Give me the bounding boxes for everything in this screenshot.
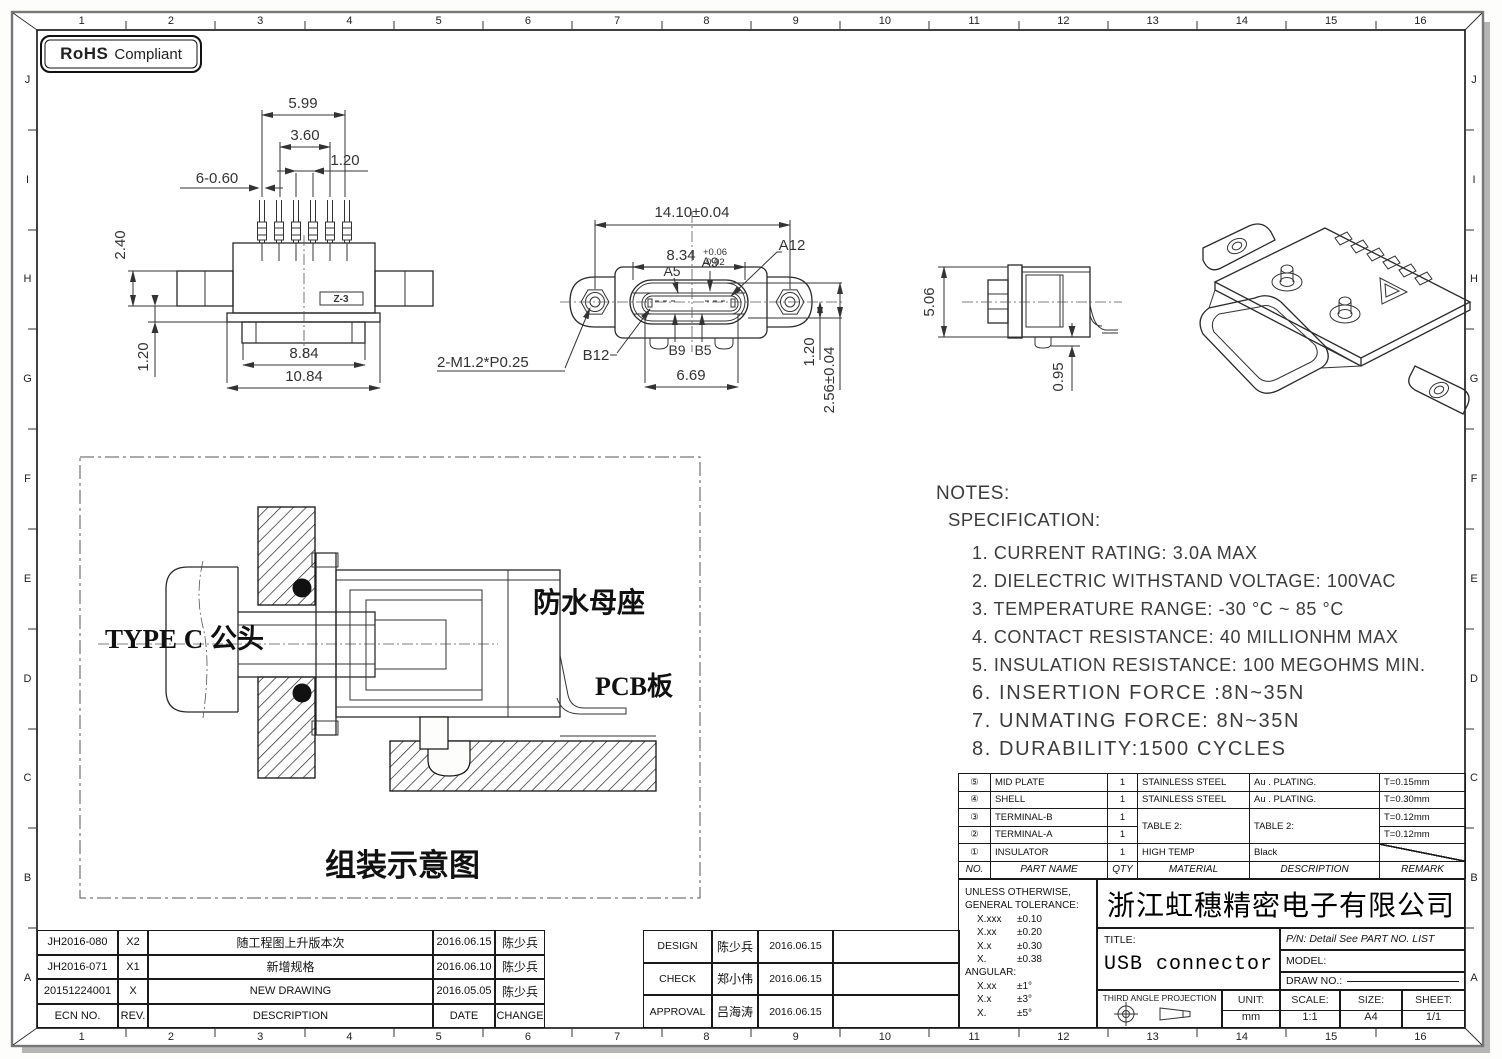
dim-5.06: 5.06 xyxy=(921,287,938,316)
dim-1.20-top: 1.20 xyxy=(330,152,359,169)
dim-5.99: 5.99 xyxy=(288,95,317,112)
unit-label: UNIT: xyxy=(1223,994,1279,1006)
frame-row-label: A xyxy=(18,928,37,1028)
unit-value: mm xyxy=(1223,1011,1279,1023)
assembly-caption: 组装示意图 xyxy=(325,848,480,883)
approval-empty xyxy=(833,930,960,963)
frame-col-labels-bottom: 12345678910111213141516 xyxy=(37,1028,1465,1046)
note-item: 4. CONTACT RESISTANCE: 40 MILLIONHM MAX xyxy=(972,623,1466,651)
tolerance-block: UNLESS OTHERWISE, GENERAL TOLERANCE: X.x… xyxy=(958,879,1097,1028)
sheet-cell: SHEET: 1/1 xyxy=(1402,990,1465,1028)
parts-header-qty: QTY xyxy=(1108,862,1138,880)
tolerance-heading1: UNLESS OTHERWISE, xyxy=(965,886,1090,899)
flange xyxy=(227,313,380,322)
title-cell: TITLE: USB connector xyxy=(1097,928,1280,990)
frame-row-label: A xyxy=(1465,928,1483,1028)
part-qty: 1 xyxy=(1108,774,1138,792)
rev-change: 陈少兵 xyxy=(495,955,545,980)
part-qty: 1 xyxy=(1108,809,1138,827)
frame-row-label: E xyxy=(1465,529,1483,629)
frame-row-label: F xyxy=(1465,429,1483,529)
rev-desc: 随工程图上升版本次 xyxy=(148,930,433,955)
frame-row-label: J xyxy=(18,30,37,130)
draw-no-cell: DRAW NO.: xyxy=(1280,972,1465,990)
frame-col-label: 11 xyxy=(930,11,1019,30)
rev-ecn: JH2016-071 xyxy=(37,955,118,980)
part-qty: 1 xyxy=(1108,827,1138,845)
frame-row-label: D xyxy=(18,629,37,729)
plan-view-drawing: 14.10±0.04 8.34 +0.06 -0.02 6.69 1.20 2.… xyxy=(430,190,855,405)
approval-date: 2016.06.15 xyxy=(758,930,833,963)
tongue xyxy=(645,296,738,311)
bottom-post xyxy=(1035,337,1051,348)
rev-rev: X1 xyxy=(118,955,148,980)
frame-col-label: 9 xyxy=(751,1028,840,1046)
frame-row-label: D xyxy=(1465,629,1483,729)
side-flange xyxy=(1008,265,1022,338)
approval-empty xyxy=(833,963,960,996)
tolerance-rows: X.xxx±0.10X.xx±0.20X.x±0.30X.±0.38 xyxy=(965,913,1090,967)
frame-col-label: 15 xyxy=(1287,11,1376,30)
dim-14.10: 14.10±0.04 xyxy=(655,204,730,221)
frame-row-label: G xyxy=(18,329,37,429)
frame-row-label: F xyxy=(18,429,37,529)
part-desc-merged: TABLE 2: xyxy=(1250,809,1380,844)
part-no: ④ xyxy=(959,792,991,810)
dim-8.34: 8.34 xyxy=(666,247,695,264)
projection-label: THIRD ANGLE PROJECTION xyxy=(1098,991,1221,1003)
pin xyxy=(258,200,267,261)
frame-row-label: C xyxy=(1465,729,1483,829)
part-remark-slash xyxy=(1380,844,1466,862)
model-cell: MODEL: xyxy=(1280,950,1465,972)
tolerance-row: X.xx±0.20 xyxy=(965,926,1090,939)
parts-table: ⑤ MID PLATE 1 STAINLESS STEEL Au . PLATI… xyxy=(958,773,1466,879)
sheet-value: 1/1 xyxy=(1403,1011,1464,1023)
thread-callout: 2-M1.2*P0.25 xyxy=(437,354,529,371)
frame-col-label: 2 xyxy=(126,1028,215,1046)
frame-col-label: 12 xyxy=(1019,1028,1108,1046)
part-name: SHELL xyxy=(991,792,1108,810)
frame-col-label: 3 xyxy=(216,11,305,30)
dim-6-0.60: 6-0.60 xyxy=(196,170,239,187)
dim-1.20-right: 1.20 xyxy=(801,337,818,366)
rev-change: 陈少兵 xyxy=(495,979,545,1004)
approval-empty xyxy=(833,995,960,1028)
part-remark: T=0.12mm xyxy=(1380,827,1466,845)
triangle-logo xyxy=(1380,278,1407,304)
parts-header-part: PART NAME xyxy=(991,862,1108,880)
frame-row-label: I xyxy=(18,130,37,230)
rev-header-change: CHANGE xyxy=(495,1004,545,1029)
frame-row-labels-right: JIHGFEDCBA xyxy=(1465,30,1483,1028)
rev-header-desc: DESCRIPTION xyxy=(148,1004,433,1029)
notes-title: NOTES: xyxy=(936,483,1466,505)
logo-text: Z-3 xyxy=(334,294,349,305)
mount-ear-bottom xyxy=(1409,366,1469,414)
o-ring-top xyxy=(293,579,312,598)
part-name: TERMINAL-A xyxy=(991,827,1108,845)
dim-2.56: 2.56±0.04 xyxy=(821,347,838,414)
isometric-view-drawing xyxy=(1175,190,1485,435)
part-name: INSULATOR xyxy=(991,844,1108,862)
frame-row-label: E xyxy=(18,529,37,629)
frame-col-label: 7 xyxy=(573,11,662,30)
approval-role: CHECK xyxy=(643,963,712,996)
lower-block xyxy=(242,322,365,343)
dim-8.84: 8.84 xyxy=(289,345,318,362)
approval-name: 陈少兵 xyxy=(712,930,758,963)
tolerance-row: X.xxx±0.10 xyxy=(965,913,1090,926)
tolerance-heading2: GENERAL TOLERANCE: xyxy=(965,899,1090,912)
shadow-bottom xyxy=(22,1047,1490,1053)
angular-row: X.xx±1° xyxy=(965,980,1090,993)
frame-col-label: 4 xyxy=(305,1028,394,1046)
rev-ecn: JH2016-080 xyxy=(37,930,118,955)
frame-col-label: 5 xyxy=(394,11,483,30)
tolerance-row: X.±0.38 xyxy=(965,953,1090,966)
o-ring-bottom xyxy=(293,684,312,703)
label-type-c-plug: TYPE C 公头 xyxy=(105,624,264,654)
rev-date: 2016.06.15 xyxy=(433,930,495,955)
draw-no-label: DRAW NO.: xyxy=(1286,975,1342,987)
frame-col-label: 9 xyxy=(751,11,840,30)
front-view-drawing: Z-3 5.99 3.60 1.20 6-0.60 2.40 1.20 8.84… xyxy=(120,85,470,405)
parts-header-remark: REMARK xyxy=(1380,862,1466,880)
angular-heading: ANGULAR: xyxy=(965,966,1090,979)
part-remark: T=0.15mm xyxy=(1380,774,1466,792)
part-material: STAINLESS STEEL xyxy=(1138,774,1250,792)
rev-desc: NEW DRAWING xyxy=(148,979,433,1004)
projection-cell: THIRD ANGLE PROJECTION xyxy=(1097,990,1222,1028)
frame-row-label: B xyxy=(18,828,37,928)
note-item: 8. DURABILITY:1500 CYCLES xyxy=(972,735,1466,763)
frame-col-label: 11 xyxy=(930,1028,1019,1046)
approval-role: APPROVAL xyxy=(643,995,712,1028)
foot-left xyxy=(650,338,668,349)
mating-mouth-outer xyxy=(1200,296,1328,393)
label-a12: A12 xyxy=(779,237,806,254)
part-name: MID PLATE xyxy=(991,774,1108,792)
part-desc: Au . PLATING. xyxy=(1250,774,1380,792)
frame-col-label: 16 xyxy=(1376,1028,1465,1046)
title-label: TITLE: xyxy=(1104,934,1136,946)
revision-table: JH2016-080 X2 随工程图上升版本次 2016.06.15 陈少兵 J… xyxy=(37,930,545,1028)
note-item: 1. CURRENT RATING: 3.0A MAX xyxy=(972,539,1466,567)
drawing-title: USB connector xyxy=(1098,953,1279,976)
frame-row-label: J xyxy=(1465,30,1483,130)
note-item: 3. TEMPERATURE RANGE: -30 °C ~ 85 °C xyxy=(972,595,1466,623)
angular-rows: X.xx±1°X.x±3°X.±5° xyxy=(965,980,1090,1020)
socket-post xyxy=(420,717,448,749)
size-cell: SIZE: A4 xyxy=(1340,990,1402,1028)
part-qty: 1 xyxy=(1108,844,1138,862)
notes-subtitle: SPECIFICATION: xyxy=(948,509,1466,531)
pin-block xyxy=(988,280,1008,323)
angular-row: X.±5° xyxy=(965,1007,1090,1020)
frame-col-label: 10 xyxy=(840,1028,929,1046)
dim-2.40: 2.40 xyxy=(112,230,129,259)
rev-header-ecn: ECN NO. xyxy=(37,1004,118,1029)
drawing-sheet: 12345678910111213141516 1234567891011121… xyxy=(0,0,1502,1059)
rev-ecn: 20151224001 xyxy=(37,979,118,1004)
parts-header-material: MATERIAL xyxy=(1138,862,1250,880)
approval-table: DESIGN 陈少兵 2016.06.15 CHECK 郑小伟 2016.06.… xyxy=(643,930,960,1028)
dim-6.69: 6.69 xyxy=(676,367,705,384)
frame-col-label: 13 xyxy=(1108,11,1197,30)
approval-date: 2016.06.15 xyxy=(758,995,833,1028)
scale-label: SCALE: xyxy=(1281,994,1339,1006)
part-no: ⑤ xyxy=(959,774,991,792)
rohs-brand: RoHS xyxy=(60,44,108,64)
frame-col-label: 8 xyxy=(662,11,751,30)
shadow-right xyxy=(1484,22,1490,1052)
frame-col-label: 6 xyxy=(483,11,572,30)
dim-1.20-left: 1.20 xyxy=(135,342,152,371)
label-b9: B9 xyxy=(668,342,685,358)
scale-cell: SCALE: 1:1 xyxy=(1280,990,1340,1028)
smt-lead xyxy=(1090,305,1118,333)
frame-col-label: 10 xyxy=(840,11,929,30)
parts-header-no: NO. xyxy=(959,862,991,880)
scale-value: 1:1 xyxy=(1281,1011,1339,1023)
third-angle-projection-icon xyxy=(1098,1003,1221,1027)
frame-row-labels-left: JIHGFEDCBA xyxy=(18,30,37,1028)
side-view-drawing: 5.06 0.95 xyxy=(920,195,1130,410)
note-item: 2. DIELECTRIC WITHSTAND VOLTAGE: 100VAC xyxy=(972,567,1466,595)
frame-col-label: 8 xyxy=(662,1028,751,1046)
size-value: A4 xyxy=(1341,1011,1401,1023)
parts-header-desc: DESCRIPTION xyxy=(1250,862,1380,880)
approval-name: 吕海涛 xyxy=(712,995,758,1028)
rev-header-date: DATE xyxy=(433,1004,495,1029)
label-waterproof-socket: 防水母座 xyxy=(533,586,645,619)
frame-row-label: B xyxy=(1465,828,1483,928)
part-remark: T=0.30mm xyxy=(1380,792,1466,810)
rohs-label: Compliant xyxy=(114,46,182,63)
part-desc: Au . PLATING. xyxy=(1250,792,1380,810)
note-item: 6. INSERTION FORCE :8N~35N xyxy=(972,679,1466,707)
note-item: 7. UNMATING FORCE: 8N~35N xyxy=(972,707,1466,735)
mating-mouth-inner xyxy=(1212,306,1317,382)
part-qty: 1 xyxy=(1108,792,1138,810)
approval-role: DESIGN xyxy=(643,930,712,963)
socket-body xyxy=(336,570,560,717)
frame-col-label: 15 xyxy=(1287,1028,1376,1046)
part-material: STAINLESS STEEL xyxy=(1138,792,1250,810)
part-no: ③ xyxy=(959,809,991,827)
frame-col-label: 16 xyxy=(1376,11,1465,30)
rev-date: 2016.06.10 xyxy=(433,955,495,980)
angular-row: X.x±3° xyxy=(965,993,1090,1006)
part-no: ② xyxy=(959,827,991,845)
plan-body xyxy=(615,267,767,338)
label-a5: A5 xyxy=(663,263,680,279)
dim-10.84: 10.84 xyxy=(285,368,323,385)
rev-rev: X xyxy=(118,979,148,1004)
part-no: ① xyxy=(959,844,991,862)
tolerance-row: X.x±0.30 xyxy=(965,940,1090,953)
part-remark: T=0.12mm xyxy=(1380,809,1466,827)
frame-col-label: 7 xyxy=(573,1028,662,1046)
screw-boss-2 xyxy=(1339,297,1351,305)
plug-tip xyxy=(375,620,446,669)
part-name: TERMINAL-B xyxy=(991,809,1108,827)
notes-block: NOTES: SPECIFICATION: 1. CURRENT RATING:… xyxy=(936,483,1466,763)
approval-name: 郑小伟 xyxy=(712,963,758,996)
dim-3.60: 3.60 xyxy=(290,127,319,144)
frame-col-label: 14 xyxy=(1197,11,1286,30)
rev-desc: 新增规格 xyxy=(148,955,433,980)
rev-date: 2016.05.05 xyxy=(433,979,495,1004)
right-tab xyxy=(375,271,433,306)
draw-no-dash xyxy=(1347,981,1459,982)
label-b12: B12 xyxy=(583,347,610,364)
frame-col-label: 2 xyxy=(126,11,215,30)
note-item: 5. INSULATION RESISTANCE: 100 MEGOHMS MI… xyxy=(972,651,1466,679)
frame-col-label: 1 xyxy=(37,1028,126,1046)
part-material-merged: TABLE 2: xyxy=(1138,809,1250,844)
notes-items: 1. CURRENT RATING: 3.0A MAX2. DIELECTRIC… xyxy=(972,539,1466,763)
assembly-diagram: TYPE C 公头 防水母座 PCB板 组装示意图 xyxy=(78,455,702,900)
frame-col-label: 3 xyxy=(216,1028,305,1046)
label-b5: B5 xyxy=(694,342,711,358)
frame-col-label: 4 xyxy=(305,11,394,30)
unit-cell: UNIT: mm xyxy=(1222,990,1280,1028)
rev-change: 陈少兵 xyxy=(495,930,545,955)
frame-col-label: 6 xyxy=(483,1028,572,1046)
rev-rev: X2 xyxy=(118,930,148,955)
frame-col-label: 5 xyxy=(394,1028,483,1046)
rev-header-rev: REV. xyxy=(118,1004,148,1029)
label-pcb: PCB板 xyxy=(595,672,673,701)
label-a9: A9 xyxy=(701,254,718,270)
part-material: HIGH TEMP xyxy=(1138,844,1250,862)
pn-cell: P/N: Detail See PART NO. LIST xyxy=(1280,928,1465,950)
sheet-label: SHEET: xyxy=(1403,994,1464,1006)
part-desc: Black xyxy=(1250,844,1380,862)
foot-right xyxy=(715,338,733,349)
size-label: SIZE: xyxy=(1341,994,1401,1006)
frame-row-label: C xyxy=(18,729,37,829)
company-name: 浙江虹穗精密电子有限公司 xyxy=(1097,879,1465,928)
frame-col-labels-top: 12345678910111213141516 xyxy=(37,11,1465,30)
mount-ear-top xyxy=(1203,224,1275,270)
frame-col-label: 1 xyxy=(37,11,126,30)
frame-row-label: H xyxy=(18,230,37,330)
screw-boss-1 xyxy=(1281,265,1293,273)
frame-col-label: 12 xyxy=(1019,11,1108,30)
approval-date: 2016.06.15 xyxy=(758,963,833,996)
dim-0.95: 0.95 xyxy=(1050,362,1067,391)
rohs-badge: RoHS Compliant xyxy=(40,35,202,73)
